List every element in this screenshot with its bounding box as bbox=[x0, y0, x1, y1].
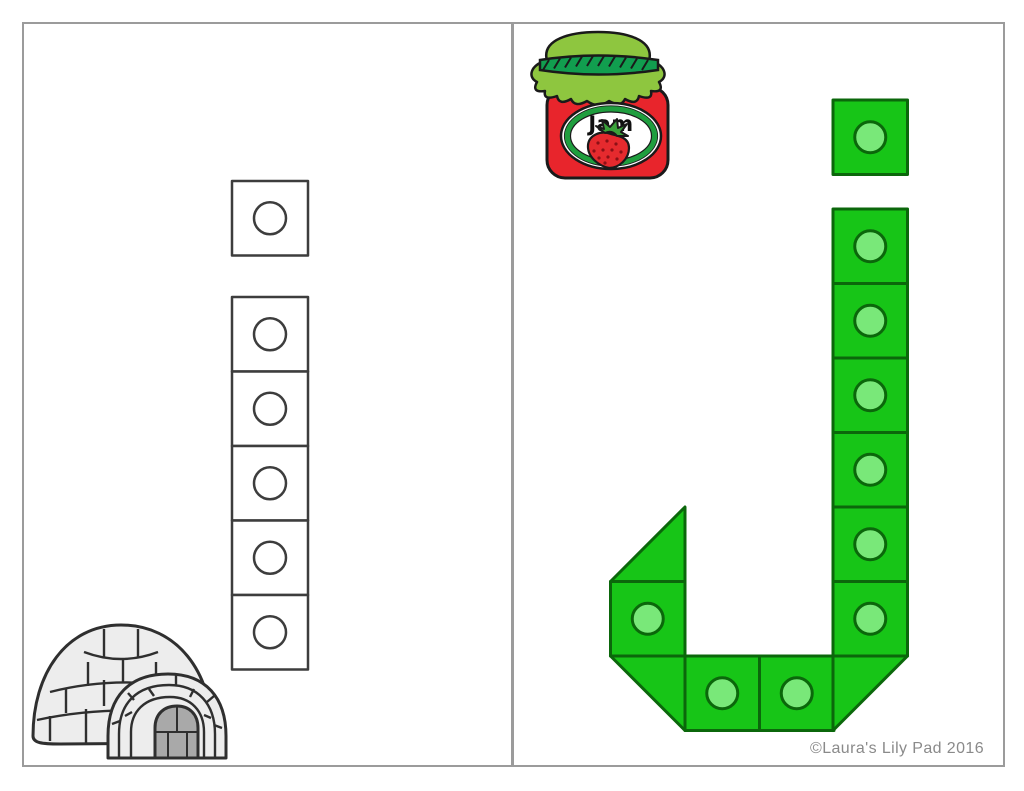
snap-cube-dot bbox=[855, 305, 886, 336]
snap-cube-dot bbox=[254, 318, 286, 350]
snap-cube-dot bbox=[855, 603, 886, 634]
letter-j-cube-shape bbox=[611, 100, 908, 731]
snap-cube-dot bbox=[254, 616, 286, 648]
snap-cube-dot bbox=[855, 380, 886, 411]
snap-cube-triangle bbox=[833, 656, 908, 731]
snap-cube-triangle bbox=[611, 507, 686, 582]
snap-cube-dot bbox=[781, 678, 812, 709]
snap-cube-dot bbox=[855, 454, 886, 485]
credit-text: ©Laura's Lily Pad 2016 bbox=[810, 740, 984, 758]
snap-cube-dot bbox=[254, 393, 286, 425]
snap-cube-dot bbox=[855, 122, 886, 153]
snap-cube-dot bbox=[254, 542, 286, 574]
snap-cube-dot bbox=[254, 467, 286, 499]
snap-cube-dot bbox=[855, 231, 886, 262]
letter-i-cube-outline bbox=[232, 181, 308, 670]
snap-cube-dot bbox=[707, 678, 738, 709]
worksheet-canvas: Jam ©Laura's Lily Pad 2016 bbox=[0, 0, 1024, 791]
jam-jar-illustration: Jam bbox=[525, 27, 673, 183]
snap-cube-dot bbox=[254, 202, 286, 234]
igloo-illustration bbox=[28, 612, 233, 762]
snap-cube-triangle bbox=[611, 656, 686, 731]
snap-cube-dot bbox=[632, 603, 663, 634]
snap-cube-dot bbox=[855, 529, 886, 560]
